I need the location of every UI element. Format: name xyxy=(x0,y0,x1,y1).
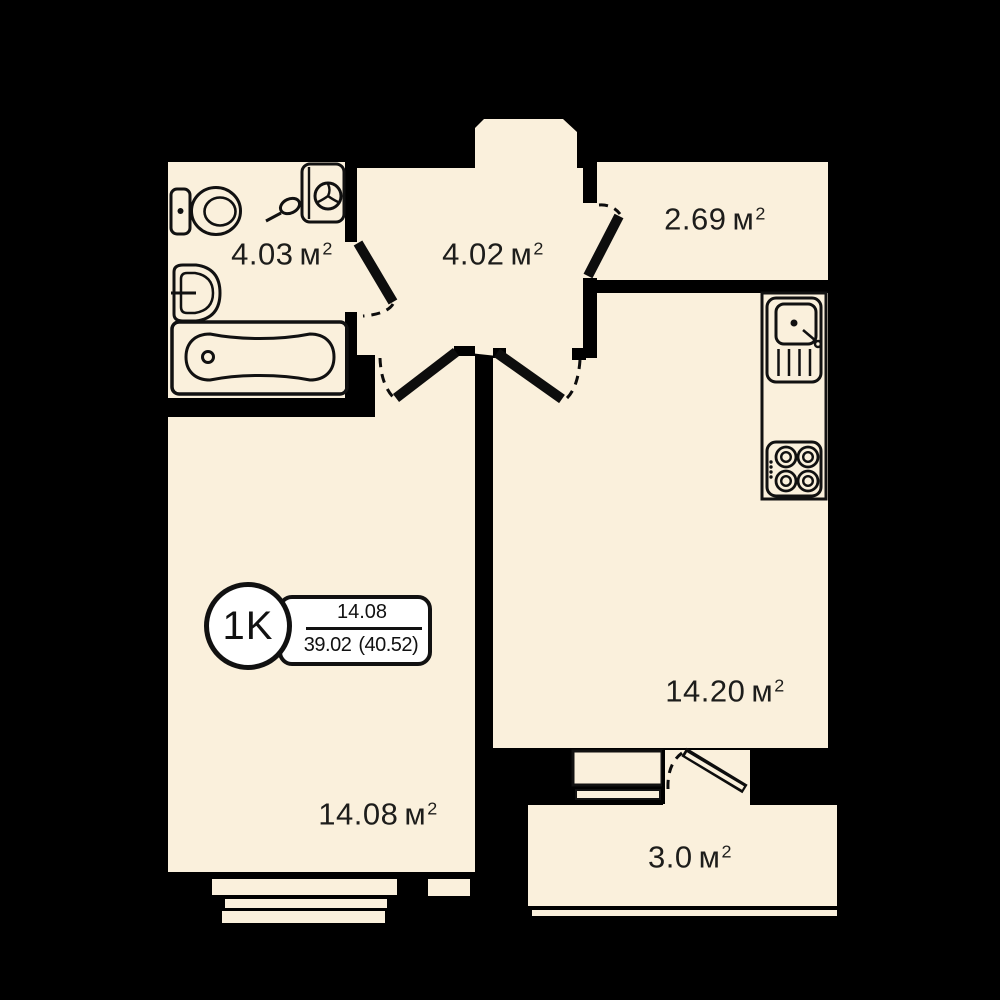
kitchen-window-sill xyxy=(576,790,660,799)
bedroom-window-frame xyxy=(225,899,387,908)
kitchen-window xyxy=(573,751,662,785)
apartment-type-label: 1K xyxy=(223,604,274,649)
badge-area-paren: (40.52) xyxy=(358,634,418,656)
area-unit: м xyxy=(699,839,721,874)
bedroom-window-outer xyxy=(222,911,385,923)
room-area-value: 2.69 xyxy=(664,201,726,236)
room-label-kitchen-living: 14.20м2 xyxy=(665,673,784,709)
room-area-value: 14.08 xyxy=(318,796,398,831)
room-label-bathroom: 4.03м2 xyxy=(231,236,333,272)
badge-divider xyxy=(306,627,422,630)
badge-total-area: 39.02(40.52) xyxy=(294,634,428,657)
kitchen-sink-drain xyxy=(791,320,798,327)
floor-plan: 4.03м2 4.02м2 2.69м2 14.20м2 14.08м2 3.0… xyxy=(0,0,1000,1000)
area-unit: м xyxy=(733,201,755,236)
apartment-type-badge: 1K xyxy=(204,582,292,670)
room-label-hallway: 4.02м2 xyxy=(442,236,544,272)
window-frame-post xyxy=(662,750,665,804)
balcony-railing xyxy=(532,910,837,916)
area-unit-sup: 2 xyxy=(755,203,766,223)
area-unit: м xyxy=(751,673,773,708)
room-label-bedroom: 14.08м2 xyxy=(318,796,437,832)
area-unit: м xyxy=(511,236,533,271)
room-area-value: 3.0 xyxy=(648,839,693,874)
area-unit-sup: 2 xyxy=(533,238,544,258)
toilet-flush-dot xyxy=(178,208,184,214)
room-label-balcony: 3.0м2 xyxy=(648,839,732,875)
area-unit-sup: 2 xyxy=(427,798,438,818)
bedroom-window-sill xyxy=(212,879,397,895)
floor-plan-drawing xyxy=(0,0,1000,1000)
room-area-value: 4.03 xyxy=(231,236,293,271)
area-unit-sup: 2 xyxy=(774,675,785,695)
room-area-value: 14.20 xyxy=(665,673,745,708)
badge-area-value: 39.02 xyxy=(304,634,352,656)
area-unit: м xyxy=(404,796,426,831)
area-unit-sup: 2 xyxy=(721,841,732,861)
wall-stub xyxy=(572,348,586,360)
area-unit: м xyxy=(300,236,322,271)
area-unit-sup: 2 xyxy=(322,238,333,258)
room-label-storage: 2.69м2 xyxy=(664,201,766,237)
badge-living-area: 14.08 xyxy=(300,601,424,624)
bedroom-window-sill-right xyxy=(428,879,470,896)
room-area-value: 4.02 xyxy=(442,236,504,271)
